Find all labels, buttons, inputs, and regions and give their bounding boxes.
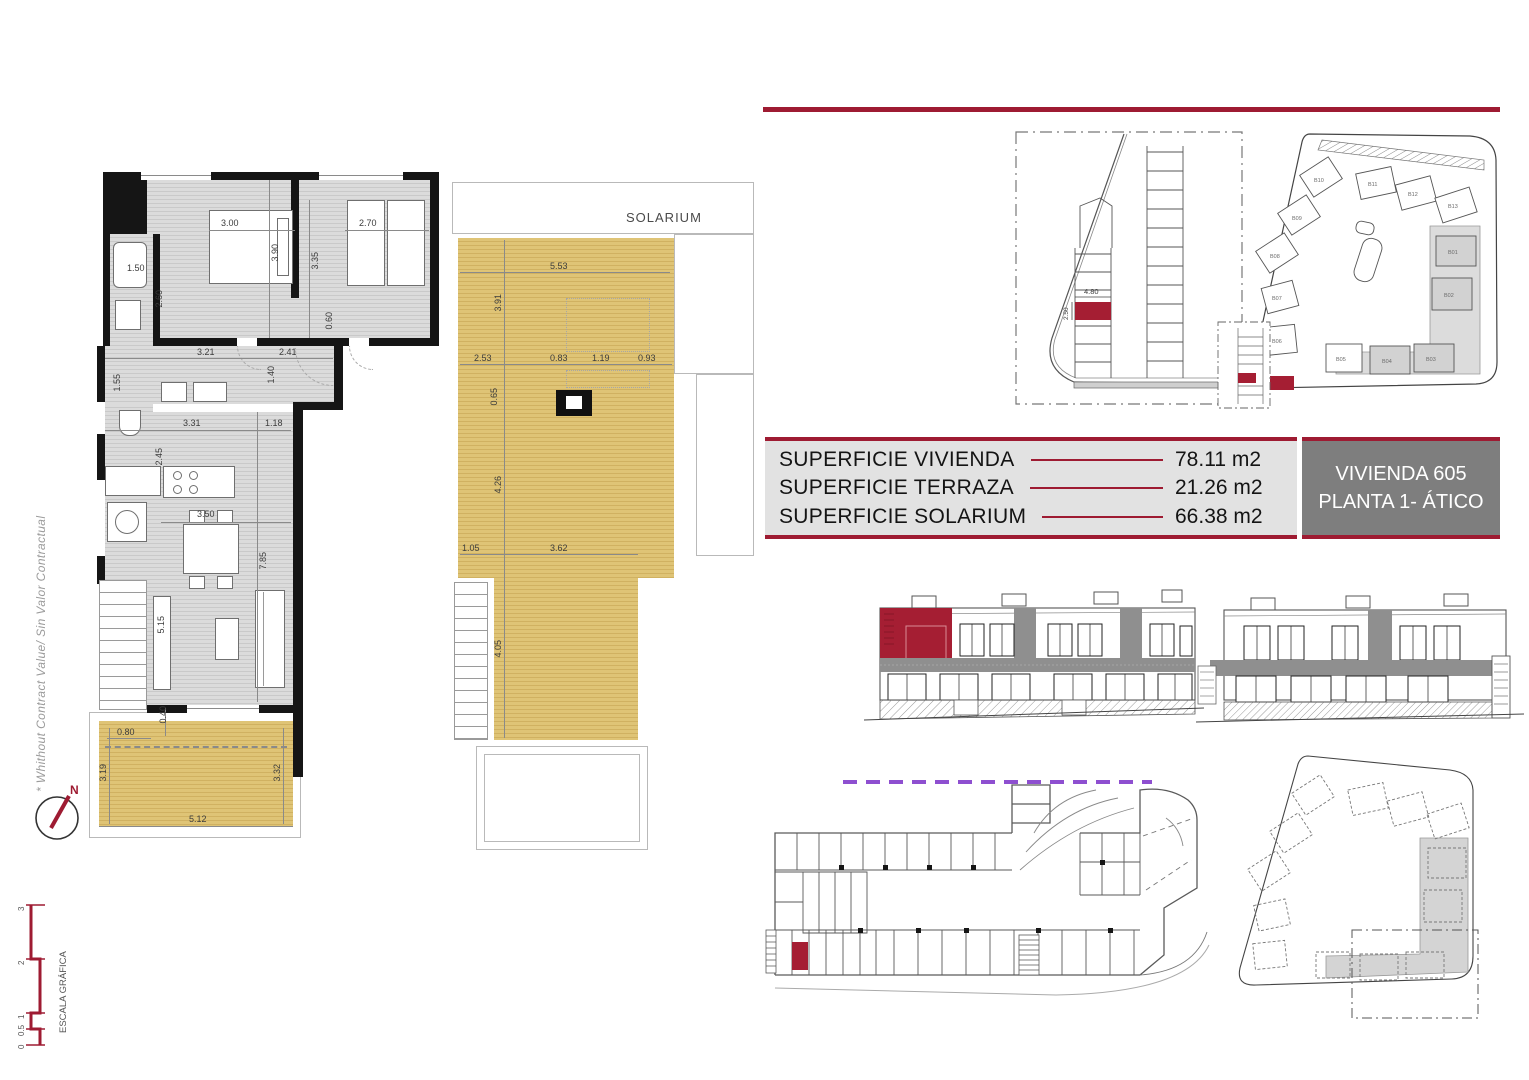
sidewalk-strip <box>1074 382 1238 388</box>
single-bed <box>347 200 385 286</box>
stove-burner <box>189 471 198 480</box>
chimney-opening <box>566 396 582 409</box>
scale-bar-ticks <box>26 905 45 1045</box>
plot-boundary-dashdot <box>1016 132 1242 404</box>
window <box>141 172 211 180</box>
svg-text:B03: B03 <box>1426 357 1436 363</box>
garage-plan <box>766 740 1214 1020</box>
highlighted-unit <box>1268 376 1294 390</box>
dim-label: 1.55 <box>113 374 122 392</box>
contract-disclaimer-note: * Whithout Contract Value/ Sin Valor Con… <box>34 452 48 792</box>
dim-label: 3.00 <box>221 219 239 228</box>
dim-line <box>161 522 291 523</box>
dim-line <box>460 364 672 365</box>
bathroom-sink <box>115 300 141 330</box>
leader-line <box>1042 516 1163 518</box>
solarium-title: SOLARIUM <box>626 210 702 225</box>
highlighted-parking-space <box>1075 302 1111 320</box>
dim-line <box>283 728 284 824</box>
sofa-cushion-line <box>263 592 264 686</box>
roof-outline <box>674 234 754 374</box>
scale-tick-2: 2 <box>17 960 26 965</box>
wall <box>293 402 343 410</box>
scale-bar-line <box>31 905 40 1045</box>
lower-terrace-outline-inner <box>484 754 640 842</box>
dim-label: 1.50 <box>127 264 145 273</box>
svg-text:B12: B12 <box>1408 192 1418 198</box>
kitchen-island <box>163 466 235 498</box>
wall <box>369 338 439 346</box>
roof-outline <box>696 374 754 556</box>
dim-label: 2.53 <box>474 354 492 363</box>
stove-burner <box>173 485 182 494</box>
wall <box>97 346 105 402</box>
solarium-plan: SOLARIUM 5.53 3.91 2.53 0.83 1.19 0.93 0… <box>448 178 768 878</box>
dim-line <box>504 240 505 738</box>
dim-line <box>109 728 110 824</box>
dining-table <box>183 524 239 574</box>
unit-floor: PLANTA 1- ÁTICO <box>1318 488 1483 516</box>
dim-label: 3.91 <box>494 294 503 312</box>
row-label: SUPERFICIE SOLARIUM <box>779 505 1026 529</box>
wall <box>257 338 349 346</box>
header-rule <box>763 107 1500 112</box>
washing-machine-door <box>115 510 139 534</box>
counter <box>105 466 161 496</box>
dim-label: 0.83 <box>550 354 568 363</box>
dim-line <box>105 358 333 359</box>
single-bed <box>387 200 425 286</box>
scale-tick-0: 0 <box>17 1044 26 1049</box>
dim-label: 1.19 <box>592 354 610 363</box>
stair-core <box>1014 608 1036 658</box>
leader-line <box>1030 487 1163 489</box>
dim-line <box>345 230 429 231</box>
scale-tick-3: 3 <box>17 906 26 911</box>
dim-label: 2.70 <box>359 219 377 228</box>
ramp-arcs <box>1020 790 1183 870</box>
dim-line <box>99 826 293 827</box>
site-plan-phase <box>1212 726 1524 1022</box>
parking-stalls <box>1075 146 1183 378</box>
wall <box>97 434 105 480</box>
dim-line <box>460 272 670 273</box>
site-plan-key: B10 B09 B08 B07 B06 B11 B12 B13 B01 B02 … <box>1218 126 1510 414</box>
dim-label: 1.05 <box>462 544 480 553</box>
wall <box>103 234 110 346</box>
dim-line <box>105 430 291 431</box>
north-arrow: N <box>30 780 90 844</box>
dim-label: 0.40 <box>159 706 168 724</box>
dim-label: 3.31 <box>183 419 201 428</box>
north-label: N <box>70 783 79 797</box>
building-elevation-side <box>1196 568 1526 722</box>
plan-sheet: { "colors": { "accent": "#9e1b32", "tan"… <box>0 0 1529 1080</box>
row-label: SUPERFICIE VIVIENDA <box>779 448 1015 472</box>
wall <box>430 172 439 344</box>
dim-label: 7.85 <box>259 552 268 570</box>
chair <box>189 576 205 589</box>
unit-name: VIVIENDA 605 <box>1335 460 1466 488</box>
dim-label: 0.60 <box>325 312 334 330</box>
wall <box>293 410 303 777</box>
corner-curve <box>1140 932 1207 975</box>
svg-text:B08: B08 <box>1270 254 1280 260</box>
parking-stall-lines <box>775 833 1140 975</box>
terrace-dashed-line <box>105 746 287 748</box>
dim-label: 2.41 <box>279 348 297 357</box>
stove-burner <box>189 485 198 494</box>
dim-label: 3.62 <box>550 544 568 553</box>
dim-label: 5.12 <box>189 815 207 824</box>
dim-label: 0.65 <box>490 388 499 406</box>
plinth-hatch <box>1224 702 1492 720</box>
row-value: 21.26 m2 <box>1175 476 1283 500</box>
row-value: 66.38 m2 <box>1175 505 1283 529</box>
road-edge <box>775 945 1209 995</box>
side-stair <box>1492 656 1510 718</box>
parking-width-label: 4.80 <box>1084 287 1099 296</box>
dim-label: 5.15 <box>157 616 166 634</box>
unit-id-box: VIVIENDA 605 PLANTA 1- ÁTICO <box>1302 437 1500 539</box>
stairs <box>99 580 147 710</box>
parking-plan: 4.80 2.50 <box>1012 126 1252 416</box>
stair-core <box>1120 608 1142 658</box>
svg-text:B07: B07 <box>1272 296 1282 302</box>
dim-label: 1.18 <box>265 419 283 428</box>
highlighted-storage <box>792 942 808 970</box>
scale-title: ESCALA GRÁFICA <box>58 951 69 1033</box>
toilet <box>119 410 141 436</box>
stove-burner <box>173 471 182 480</box>
dim-label: 3.21 <box>197 348 215 357</box>
dim-label: 4.05 <box>494 640 503 658</box>
window <box>319 172 403 180</box>
table-row: SUPERFICIE TERRAZA 21.26 m2 <box>779 476 1283 500</box>
table-row: SUPERFICIE VIVIENDA 78.11 m2 <box>779 448 1283 472</box>
kitchen-sink <box>161 382 187 402</box>
chimneys <box>1251 594 1468 610</box>
mini-parking-inset <box>1218 322 1270 408</box>
svg-text:B13: B13 <box>1448 204 1458 210</box>
sofa <box>255 590 285 688</box>
svg-text:B10: B10 <box>1314 178 1324 184</box>
wall <box>103 172 147 234</box>
street-curve <box>1050 134 1238 384</box>
tv-unit <box>153 596 171 690</box>
svg-text:B09: B09 <box>1292 216 1302 222</box>
svg-text:B02: B02 <box>1444 293 1454 299</box>
dim-label: 4.26 <box>494 476 503 494</box>
dim-label: 5.53 <box>550 262 568 271</box>
scale-tick-05: 0.5 <box>17 1024 26 1036</box>
pergola-dashed-area <box>566 370 650 388</box>
dim-label: 2.45 <box>155 448 164 466</box>
wall <box>334 346 343 408</box>
row-value: 78.11 m2 <box>1175 448 1283 472</box>
leader-line <box>1031 459 1163 461</box>
highlighted-unit-elevation <box>880 608 952 666</box>
column-marks <box>839 860 1113 933</box>
chimneys <box>912 590 1182 608</box>
chair <box>217 576 233 589</box>
svg-text:B06: B06 <box>1272 339 1282 345</box>
dim-label: 3.35 <box>311 252 320 270</box>
row-label: SUPERFICIE TERRAZA <box>779 476 1014 500</box>
solarium-deck-lower <box>494 578 638 740</box>
balcony-band <box>1210 660 1510 676</box>
door-swing <box>349 346 373 370</box>
dim-line <box>107 738 151 739</box>
dim-label: 3.50 <box>197 510 215 519</box>
dim-label: 1.40 <box>267 366 276 384</box>
stair-core <box>1368 610 1392 660</box>
coffee-table <box>215 618 239 660</box>
svg-text:B01: B01 <box>1448 250 1458 256</box>
svg-text:B05: B05 <box>1336 357 1346 363</box>
pergola-dashed-area <box>566 298 650 352</box>
svg-text:B11: B11 <box>1368 182 1377 188</box>
solarium-stairs <box>454 582 488 740</box>
cooktop-counter <box>193 382 227 402</box>
parking-depth-label: 2.50 <box>1063 307 1070 320</box>
north-needle <box>51 796 69 828</box>
dim-label: 0.80 <box>117 728 135 737</box>
dim-line <box>460 554 638 555</box>
scale-tick-1: 1 <box>17 1014 26 1019</box>
wall <box>153 338 237 346</box>
dim-line <box>209 230 295 231</box>
dim-label: 2.60 <box>155 290 164 308</box>
ramp-dashes <box>1143 818 1194 890</box>
table-row: SUPERFICIE SOLARIUM 66.38 m2 <box>779 505 1283 529</box>
dim-label: 3.19 <box>99 764 108 782</box>
floor-plan: 3.00 3.90 2.70 3.35 1.50 2.60 0.60 3.21 … <box>97 172 447 838</box>
dim-label: 0.93 <box>638 354 656 363</box>
graphic-scale: 0 0.5 1 2 3 ESCALA GRÁFICA <box>20 893 80 1058</box>
window <box>187 705 259 713</box>
svg-text:B04: B04 <box>1382 359 1392 365</box>
entry-step <box>954 700 978 715</box>
dim-label: 3.90 <box>271 244 280 262</box>
dim-label: 3.32 <box>273 764 282 782</box>
surface-summary-table: SUPERFICIE VIVIENDA 78.11 m2 SUPERFICIE … <box>765 437 1297 539</box>
roof-outline <box>452 182 754 234</box>
building-elevation-front <box>862 568 1207 720</box>
